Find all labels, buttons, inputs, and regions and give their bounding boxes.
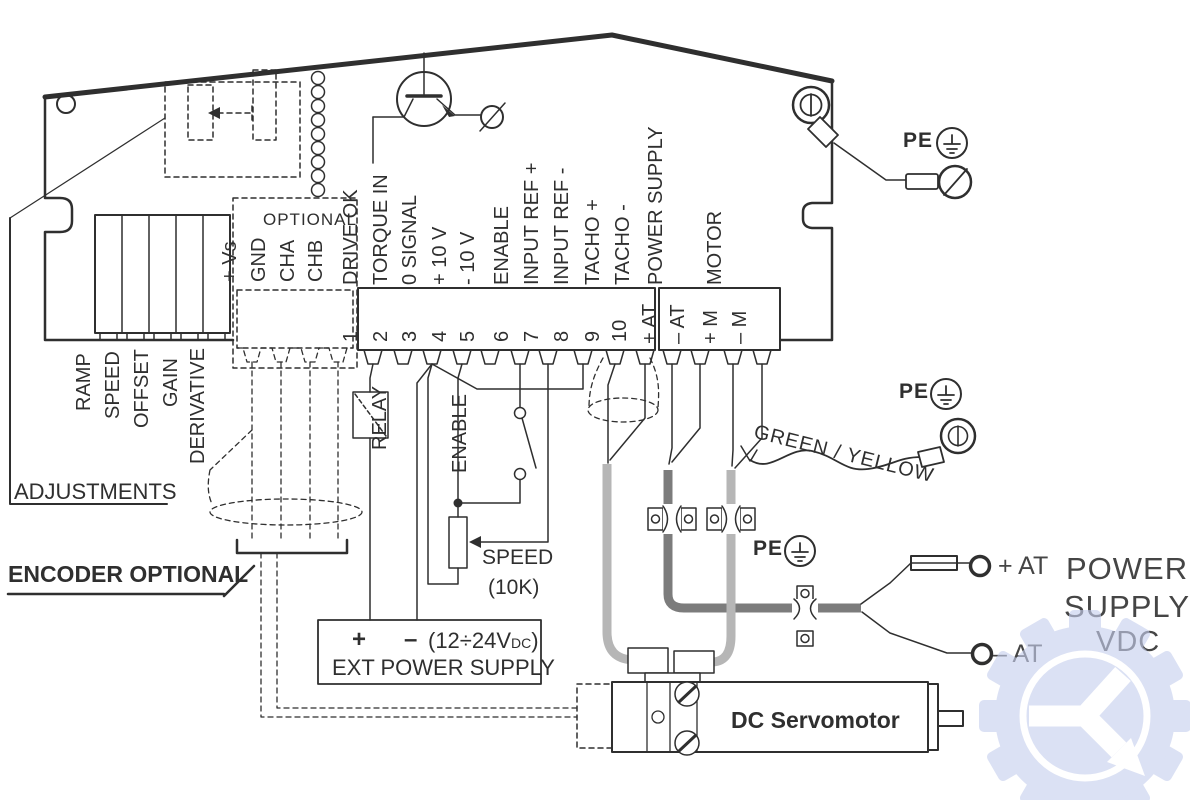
pot-label-derivative: DERIVATIVE — [187, 348, 209, 464]
terminal-label-6: ENABLE — [491, 206, 513, 285]
supply-title-line1: POWER — [1066, 551, 1188, 587]
encoder-pin-gnd: GND — [248, 238, 270, 282]
pe-label-low: PE — [753, 537, 783, 561]
pe-symbol-top — [937, 128, 967, 158]
relay-label: RELAY — [369, 386, 391, 450]
servomotor-label: DC Servomotor — [731, 707, 900, 734]
encoder-pin-cha: CHA — [277, 240, 299, 282]
indicator-lamp-icon — [480, 103, 505, 131]
supply-minus-at: – AT — [993, 640, 1043, 669]
terminal-label-8: INPUT REF - — [551, 168, 573, 285]
encoder-optional-title: OPTIONAL — [263, 210, 357, 230]
enable-switch-symbol — [515, 408, 537, 480]
terminal-num-3: 3 — [399, 331, 421, 342]
speed-pot-label: SPEED — [482, 546, 553, 570]
pot-label-offset: OFFSET — [131, 349, 153, 428]
supply-title-line2: SUPPLY — [1064, 589, 1190, 625]
vent-holes — [312, 72, 325, 197]
terminal-num-7: 7 — [521, 331, 543, 342]
rating-end: ) — [531, 628, 538, 653]
pot-label-speed: SPEED — [102, 351, 124, 419]
supply-title-line3: VDC — [1096, 626, 1160, 659]
signal-wires — [370, 364, 762, 620]
plus-at-terminal — [971, 557, 990, 576]
encoder-pin-chb: CHB — [305, 240, 327, 282]
pe-ring-terminal-mid — [918, 419, 975, 467]
terminal-num-9: 9 — [582, 331, 604, 342]
terminal-label-4: + 10 V — [429, 227, 451, 285]
ext-supply-minus: – — [404, 626, 417, 654]
clamp-horizontal — [792, 586, 818, 646]
motor-cable — [713, 470, 731, 662]
pe-symbol-mid — [931, 379, 961, 409]
terminal-num-6: 6 — [491, 331, 513, 342]
terminal-num-5: 5 — [457, 331, 479, 342]
terminal-label-9: TACHO + — [582, 199, 604, 285]
internal-connector-dashed — [165, 70, 300, 177]
terminal-num-2: 2 — [370, 331, 392, 342]
enable-switch-label: ENABLE — [449, 394, 471, 473]
servomotor-drawing — [577, 648, 963, 755]
terminal-plus-m: + M — [700, 310, 722, 344]
adjustments-title: ADJUSTMENTS — [14, 479, 177, 505]
pot-label-gain: GAIN — [160, 358, 182, 407]
ext-supply-title: EXT POWER SUPPLY — [332, 655, 555, 681]
terminal-label-10: TACHO - — [612, 204, 634, 285]
terminal-minus-m: – M — [729, 311, 751, 344]
encoder-optional-note: ENCODER OPTIONAL — [8, 561, 248, 588]
motor-shaft — [938, 711, 963, 726]
tacho-shield-dashed — [588, 358, 659, 422]
terminal-label-2: TORQUE IN — [370, 174, 392, 285]
adjustment-pot-block — [95, 215, 230, 340]
motor-group-label: MOTOR — [704, 211, 726, 285]
pe-earth-symbols — [785, 128, 967, 566]
rating-sub: DC — [511, 635, 531, 651]
supply-plus-at: + AT — [998, 552, 1048, 581]
terminal-minus-at: – AT — [667, 304, 689, 344]
terminal-num-4: 4 — [429, 331, 451, 342]
terminal-num-8: 8 — [551, 331, 573, 342]
tacho-cable — [607, 464, 633, 660]
pe-ring-terminal-top — [793, 87, 971, 198]
ext-supply-rating: (12÷24VDC) — [428, 628, 539, 654]
adjustments-pointer-line — [10, 118, 165, 218]
case-hole — [57, 95, 75, 113]
pe-label-top: PE — [903, 129, 933, 153]
pe-symbol-low — [785, 536, 815, 566]
terminal-label-7: INPUT REF + — [521, 163, 543, 285]
clamp-power — [648, 504, 696, 534]
ext-supply-plus: + — [352, 626, 366, 654]
power-supply-group-label: POWER SUPPLY — [645, 126, 667, 285]
motor-flange — [928, 684, 938, 750]
terminal-plus-at: + AT — [639, 304, 661, 344]
speed-pot-value: (10K) — [488, 576, 539, 600]
minus-at-terminal — [973, 645, 992, 664]
pot-label-ramp: RAMP — [73, 353, 95, 411]
pe-label-mid: PE — [899, 380, 929, 404]
wiring-diagram-page: DRIVE OK TORQUE IN 0 SIGNAL + 10 V - 10 … — [0, 0, 1190, 800]
terminal-num-1: 1 — [340, 331, 362, 342]
terminal-label-1: DRIVE OK — [340, 189, 362, 285]
terminal-label-3: 0 SIGNAL — [399, 195, 421, 285]
cables — [607, 464, 861, 662]
connector-arrowhead — [208, 107, 220, 119]
clamp-motor — [707, 504, 755, 534]
encoder-cable-bracket — [237, 540, 347, 553]
supply-terminals — [861, 556, 992, 664]
transistor-symbol — [373, 53, 481, 163]
terminal-num-10: 10 — [609, 320, 631, 342]
encoder-pin-vs: + Vs — [219, 241, 241, 282]
speed-pot-symbol — [449, 517, 467, 568]
terminal-label-5: - 10 V — [457, 232, 479, 285]
rating-main: (12÷24V — [428, 628, 511, 653]
